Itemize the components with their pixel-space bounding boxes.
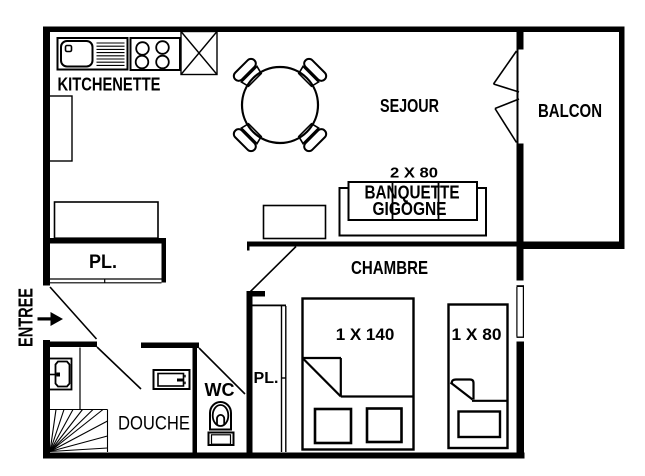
svg-text:WC: WC: [205, 380, 235, 400]
svg-text:CHAMBRE: CHAMBRE: [351, 258, 428, 278]
svg-text:DOUCHE: DOUCHE: [118, 414, 190, 435]
svg-text:PL.: PL.: [89, 251, 117, 273]
svg-text:1 X 140: 1 X 140: [336, 325, 395, 344]
svg-text:ENTREE: ENTREE: [16, 288, 38, 347]
svg-text:KITCHENETTE: KITCHENETTE: [58, 75, 161, 95]
svg-text:2 X 80: 2 X 80: [390, 165, 438, 182]
svg-text:BALCON: BALCON: [538, 101, 602, 121]
svg-text:GIGOGNE: GIGOGNE: [373, 199, 447, 219]
svg-text:1 X 80: 1 X 80: [452, 325, 502, 344]
svg-text:SEJOUR: SEJOUR: [380, 96, 439, 116]
svg-text:PL.: PL.: [254, 370, 279, 387]
